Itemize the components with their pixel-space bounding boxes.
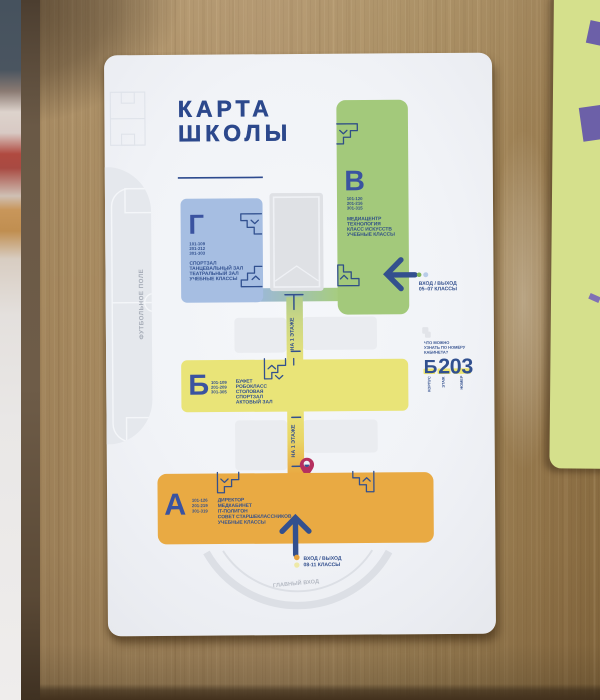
svg-text:ШКОЛЫ: ШКОЛЫ <box>178 120 291 147</box>
svg-text:201-219: 201-219 <box>192 503 208 508</box>
svg-text:БУФЕТ: БУФЕТ <box>236 379 253 385</box>
svg-text:КАРТА: КАРТА <box>178 95 273 122</box>
svg-text:Б: Б <box>424 357 438 378</box>
svg-text:ГЛАВНЫЙ ВХОД: ГЛАВНЫЙ ВХОД <box>273 577 320 589</box>
svg-text:НОМЕР: НОМЕР <box>460 375 464 389</box>
svg-text:101-126: 101-126 <box>192 498 208 503</box>
svg-text:IT-ПОЛИГОН: IT-ПОЛИГОН <box>218 508 248 514</box>
svg-text:УЧЕБНЫЕ КЛАССЫ: УЧЕБНЫЕ КЛАССЫ <box>347 232 395 238</box>
svg-text:ДИРЕКТОР: ДИРЕКТОР <box>218 497 245 503</box>
svg-text:КОРПУС: КОРПУС <box>427 376 431 392</box>
svg-text:301-303: 301-303 <box>189 251 205 256</box>
svg-text:Г: Г <box>188 209 204 240</box>
svg-text:301-315: 301-315 <box>347 205 363 210</box>
svg-text:МЕДКАБИНЕТ: МЕДКАБИНЕТ <box>218 503 252 509</box>
svg-text:05–07 КЛАССЫ: 05–07 КЛАССЫ <box>419 286 457 292</box>
svg-text:Б: Б <box>188 370 209 402</box>
svg-text:203: 203 <box>438 354 473 378</box>
svg-text:СОВЕТ СТАРШЕКЛАССНИКОВ: СОВЕТ СТАРШЕКЛАССНИКОВ <box>218 514 292 521</box>
svg-text:УЧЕБНЫЕ КЛАССЫ: УЧЕБНЫЕ КЛАССЫ <box>190 276 238 282</box>
svg-text:НА 1 ЭТАЖЕ: НА 1 ЭТАЖЕ <box>291 424 297 457</box>
svg-text:ЭТАЖ: ЭТАЖ <box>442 376 446 388</box>
svg-text:301-305: 301-305 <box>211 389 227 394</box>
svg-text:ВХОД / ВЫХОД: ВХОД / ВЫХОД <box>303 556 341 562</box>
svg-text:А: А <box>164 488 186 522</box>
svg-text:В: В <box>344 165 365 197</box>
svg-text:НА 1 ЭТАЖЕ: НА 1 ЭТАЖЕ <box>290 317 296 350</box>
svg-text:УЧЕБНЫЕ КЛАССЫ: УЧЕБНЫЕ КЛАССЫ <box>218 520 266 526</box>
svg-text:08-11 КЛАССЫ: 08-11 КЛАССЫ <box>304 562 341 568</box>
svg-text:301-319: 301-319 <box>192 508 208 513</box>
svg-text:ФУТБОЛЬНОЕ ПОЛЕ: ФУТБОЛЬНОЕ ПОЛЕ <box>138 269 145 340</box>
